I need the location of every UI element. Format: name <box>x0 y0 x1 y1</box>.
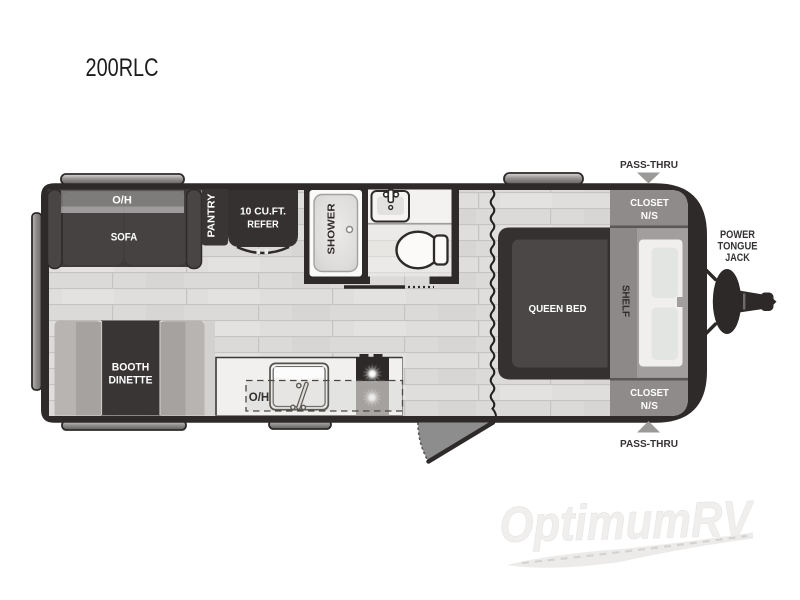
svg-text:200RLC: 200RLC <box>86 54 159 82</box>
svg-text:DINETTE: DINETTE <box>109 375 153 387</box>
svg-text:QUEEN BED: QUEEN BED <box>529 303 587 315</box>
svg-text:SHELF: SHELF <box>620 285 631 317</box>
svg-text:O/H: O/H <box>112 195 132 207</box>
svg-text:BOOTH: BOOTH <box>112 362 150 374</box>
svg-text:CLOSET: CLOSET <box>630 388 669 399</box>
svg-text:CLOSET: CLOSET <box>630 198 669 209</box>
svg-text:SHOWER: SHOWER <box>326 203 338 254</box>
svg-text:PASS-THRU: PASS-THRU <box>620 438 678 450</box>
svg-text:REFER: REFER <box>247 219 279 231</box>
svg-text:10 CU.FT.: 10 CU.FT. <box>240 206 286 218</box>
svg-text:SOFA: SOFA <box>111 232 138 244</box>
svg-text:POWER: POWER <box>720 229 755 241</box>
svg-text:N/S: N/S <box>641 211 659 222</box>
svg-text:JACK: JACK <box>725 252 750 264</box>
svg-text:PANTRY: PANTRY <box>206 194 218 238</box>
svg-text:TONGUE: TONGUE <box>718 241 758 253</box>
svg-text:O/H: O/H <box>249 392 269 404</box>
svg-text:PASS-THRU: PASS-THRU <box>620 159 678 171</box>
svg-text:N/S: N/S <box>641 401 659 412</box>
